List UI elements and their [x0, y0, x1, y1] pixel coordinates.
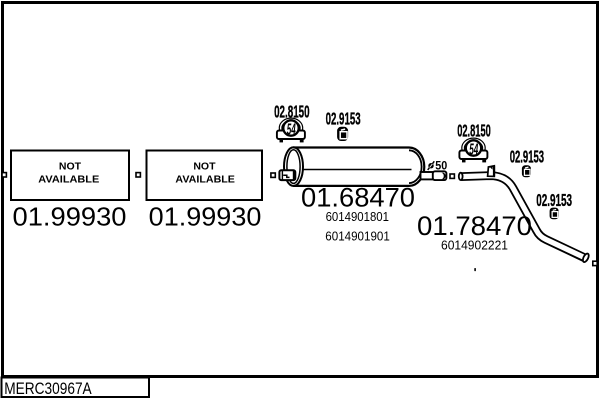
svg-text:01.99930: 01.99930	[149, 201, 262, 231]
svg-text:AVAILABLE: AVAILABLE	[175, 174, 235, 186]
svg-text:02.9153: 02.9153	[536, 190, 572, 210]
svg-text:6014901801: 6014901801	[326, 209, 389, 224]
svg-text:50: 50	[435, 161, 447, 173]
svg-text:01.68470: 01.68470	[301, 182, 415, 212]
svg-text:AVAILABLE: AVAILABLE	[38, 174, 99, 186]
svg-text:MERC30967A: MERC30967A	[4, 380, 92, 398]
svg-text:6014902221: 6014902221	[441, 237, 508, 252]
svg-text:02.9153: 02.9153	[326, 109, 361, 129]
svg-text:01.78470: 01.78470	[417, 211, 532, 241]
svg-text:01.99930: 01.99930	[13, 201, 127, 231]
svg-text:02.9153: 02.9153	[510, 147, 544, 167]
svg-text:6014901901: 6014901901	[325, 228, 390, 243]
svg-text:NOT: NOT	[193, 161, 216, 173]
svg-text:02.8150: 02.8150	[457, 120, 491, 140]
svg-text:NOT: NOT	[59, 161, 82, 173]
